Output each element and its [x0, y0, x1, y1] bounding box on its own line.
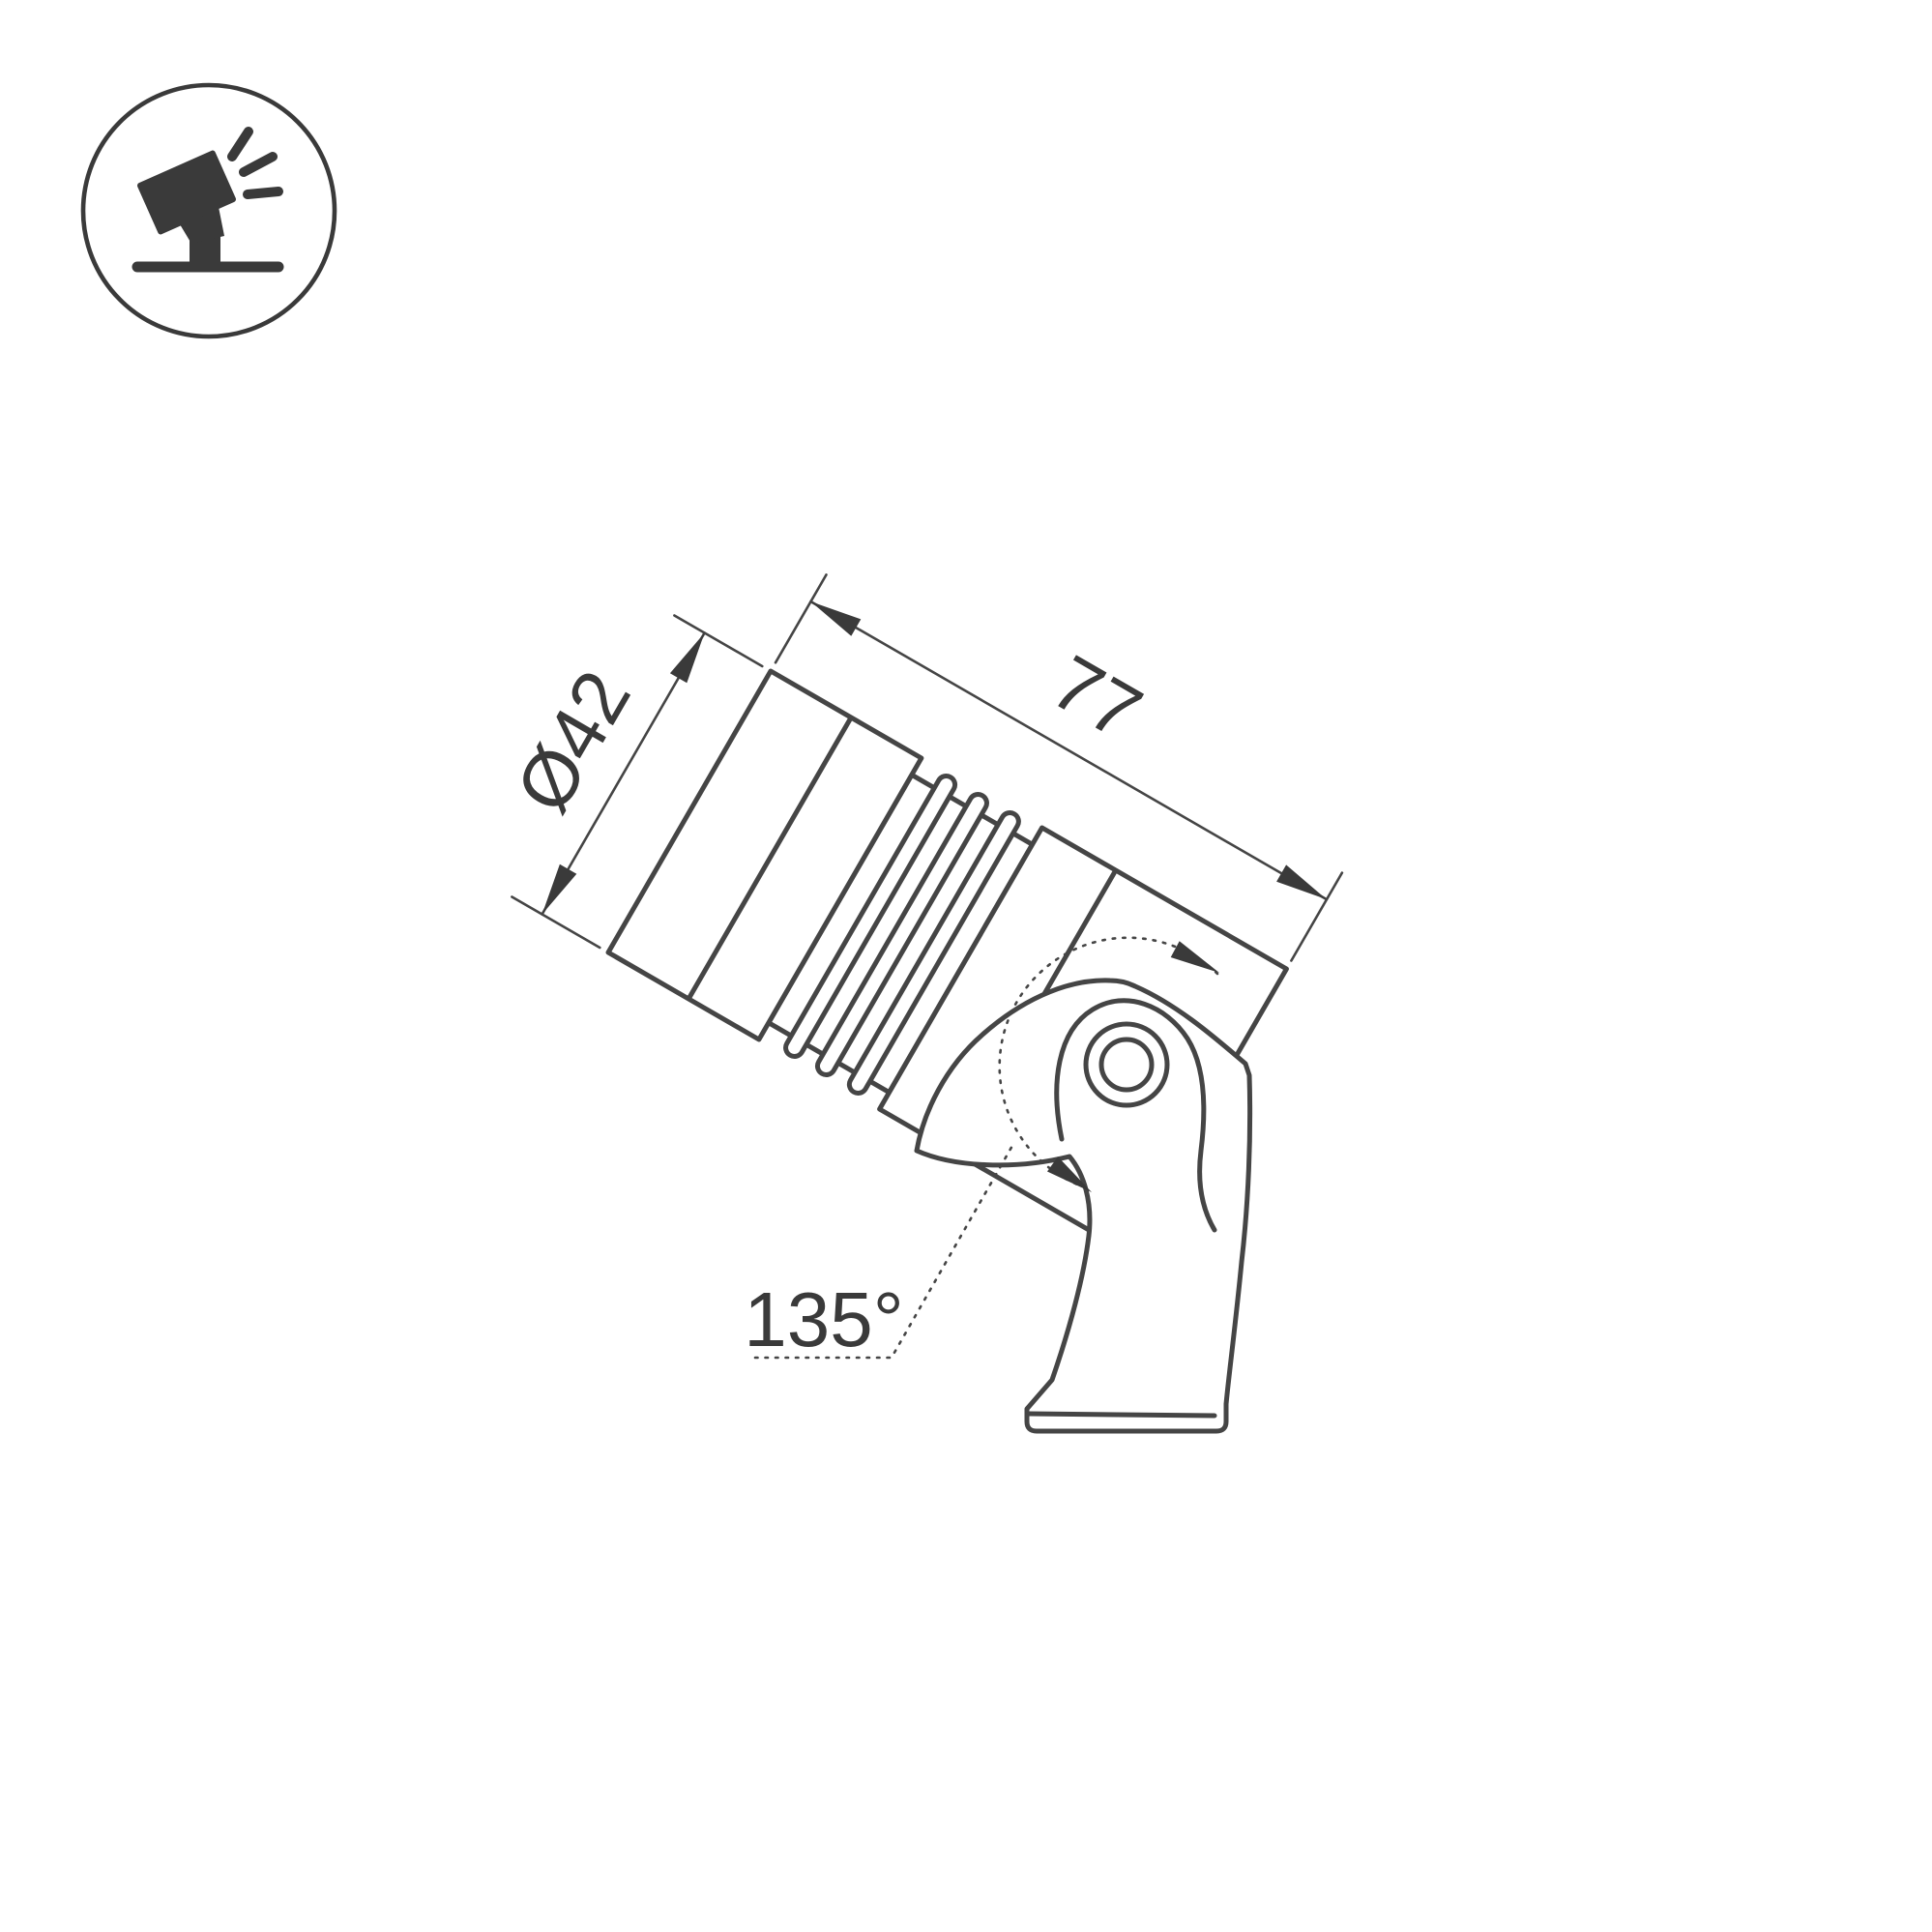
dimension-arrowhead [542, 864, 577, 915]
foot-plate-line [1029, 1414, 1215, 1416]
pivot-joint [1086, 1024, 1167, 1105]
angle-callout: 135° [744, 1144, 1013, 1362]
icon-light-ray-2 [244, 157, 273, 172]
witness-line [776, 574, 827, 662]
dimension-arrowhead [811, 601, 862, 636]
witness-line [512, 897, 600, 949]
diameter-value: Ø42 [499, 657, 647, 826]
pivot-screw [1101, 1039, 1152, 1090]
dimension-arrowhead [670, 633, 705, 684]
drawing-canvas: Ø42 77 135° [0, 0, 1932, 1932]
dimension-arrowhead [1276, 864, 1327, 899]
technical-drawing: Ø42 77 135° [0, 0, 1932, 1932]
spotlight-icon [83, 85, 335, 337]
length-value: 77 [1038, 639, 1156, 757]
icon-light-ray-1 [232, 132, 249, 157]
angle-value: 135° [744, 1276, 903, 1362]
icon-light-ray-3 [248, 191, 278, 194]
icon-lamp-head [136, 150, 237, 236]
